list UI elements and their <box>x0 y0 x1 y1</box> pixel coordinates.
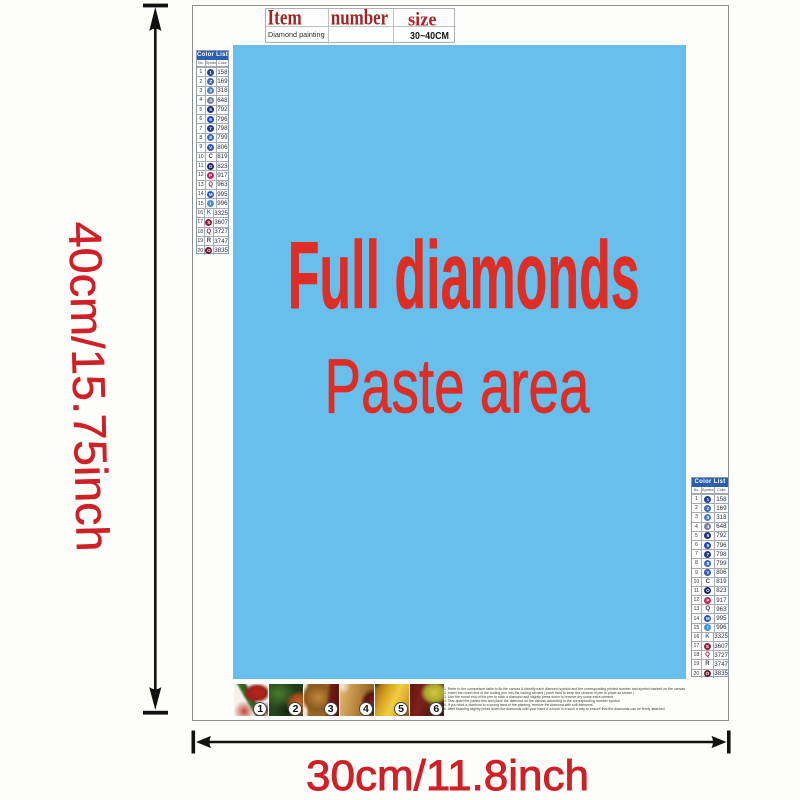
svg-text:Paste area: Paste area <box>325 344 590 430</box>
svg-text:Diamond painting: Diamond painting <box>268 30 325 39</box>
svg-text:size: size <box>408 9 437 30</box>
svg-text:Item: Item <box>268 5 303 30</box>
svg-text:30cm/11.8inch: 30cm/11.8inch <box>306 752 589 800</box>
svg-text:number: number <box>331 5 388 30</box>
svg-text:30~40CM: 30~40CM <box>410 31 449 42</box>
svg-text:Full diamonds: Full diamonds <box>288 222 640 329</box>
svg-text:40cm/15.75inch: 40cm/15.75inch <box>59 221 119 552</box>
